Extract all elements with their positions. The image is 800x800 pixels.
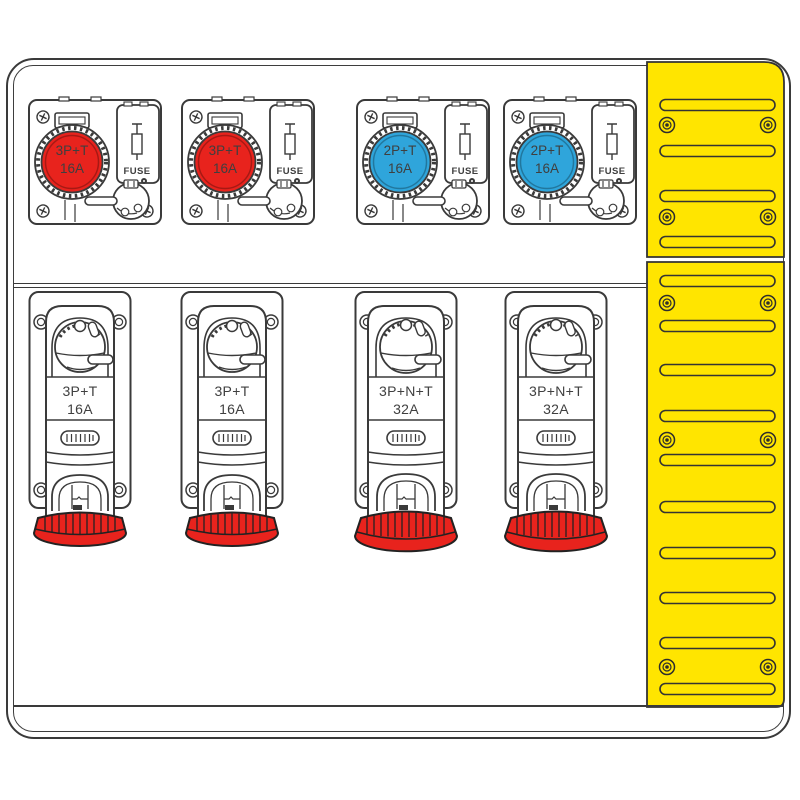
socket-rating-line2: 32A	[393, 401, 419, 417]
socket-rating-line2: 16A	[213, 161, 237, 176]
red-screw-cap	[34, 513, 126, 547]
socket-rating-line1: 3P+N+T	[529, 383, 583, 399]
fuse-compartment: FUSE	[270, 102, 312, 183]
fuse-label: FUSE	[452, 166, 479, 177]
socket-rating-line1: 2P+T	[531, 143, 564, 158]
interlock-lever	[560, 197, 592, 205]
interlocked-socket-unit-4: 3P+N+T 32A	[504, 290, 608, 560]
socket-rating-line1: 3P+N+T	[379, 383, 433, 399]
fuse-label: FUSE	[277, 166, 304, 177]
interlocked-socket-unit-2: 3P+T 16A	[180, 290, 284, 560]
vent-slot	[660, 237, 775, 248]
fuse-compartment: FUSE	[592, 102, 634, 183]
interlock-lever	[85, 197, 117, 205]
vent-slot	[660, 684, 775, 695]
vent-slot	[660, 276, 775, 287]
fuse-compartment: FUSE	[117, 102, 159, 183]
interlock-lever	[238, 197, 270, 205]
interlock-lever	[240, 355, 265, 364]
vent-slot	[660, 146, 775, 157]
code-window	[213, 431, 251, 445]
vent-slot	[660, 191, 775, 202]
fused-socket-unit-1: FUSE 3P+T 16A	[27, 96, 163, 228]
socket-rating-line2: 16A	[535, 161, 559, 176]
vent-slot	[660, 455, 775, 466]
interlocked-socket-unit-1: 3P+T 16A	[28, 290, 132, 560]
vent-slot	[660, 321, 775, 332]
socket-rating-line2: 16A	[67, 401, 93, 417]
red-screw-cap	[505, 512, 607, 552]
vent-slot	[660, 548, 775, 559]
socket-rating-line1: 3P+T	[62, 383, 97, 399]
fused-socket-unit-4: FUSE 2P+T 16A	[502, 96, 638, 228]
socket-rating-line1: 3P+T	[209, 143, 242, 158]
vent-slot	[660, 593, 775, 604]
socket-rating-line1: 2P+T	[384, 143, 417, 158]
vent-slot	[660, 638, 775, 649]
interlock-lever	[413, 197, 445, 205]
socket-rating-line2: 16A	[219, 401, 245, 417]
vent-slot	[660, 100, 775, 111]
socket-rating-line2: 16A	[388, 161, 412, 176]
fuse-label: FUSE	[124, 166, 151, 177]
socket-rating-line1: 3P+T	[56, 143, 89, 158]
interlocked-socket-unit-3: 3P+N+T 32A	[354, 290, 458, 560]
distribution-board-illustration: FUSE 3P+T 16A	[0, 0, 800, 800]
socket-rating-line2: 32A	[543, 401, 569, 417]
code-window	[61, 431, 99, 445]
vent-slot	[660, 365, 775, 376]
socket-rating-line2: 16A	[60, 161, 84, 176]
interlock-lever	[88, 355, 113, 364]
fuse-label: FUSE	[599, 166, 626, 177]
code-window	[537, 431, 575, 445]
interlock-lever	[565, 355, 591, 364]
fused-socket-unit-2: FUSE 3P+T 16A	[180, 96, 316, 228]
vent-slot	[660, 411, 775, 422]
red-screw-cap	[355, 512, 457, 552]
red-screw-cap	[186, 513, 278, 547]
vent-slot	[660, 502, 775, 513]
bottom-flange-line	[14, 705, 783, 707]
fused-socket-unit-3: FUSE 2P+T 16A	[355, 96, 491, 228]
fuse-compartment: FUSE	[445, 102, 487, 183]
yellow-cover-panel	[645, 58, 790, 713]
section-divider-line	[14, 283, 647, 288]
interlock-lever	[415, 355, 441, 364]
socket-rating-line1: 3P+T	[214, 383, 249, 399]
yellow-panel-top-section	[647, 62, 784, 257]
code-window	[387, 431, 425, 445]
